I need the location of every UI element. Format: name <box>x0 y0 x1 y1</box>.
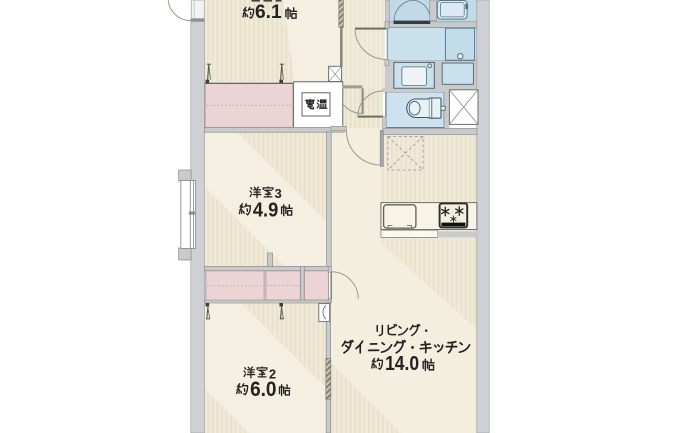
svg-text:14.0: 14.0 <box>385 353 419 375</box>
svg-text:6.0: 6.0 <box>250 378 276 401</box>
svg-text:6.1: 6.1 <box>255 1 282 23</box>
svg-text:4.9: 4.9 <box>253 198 278 221</box>
